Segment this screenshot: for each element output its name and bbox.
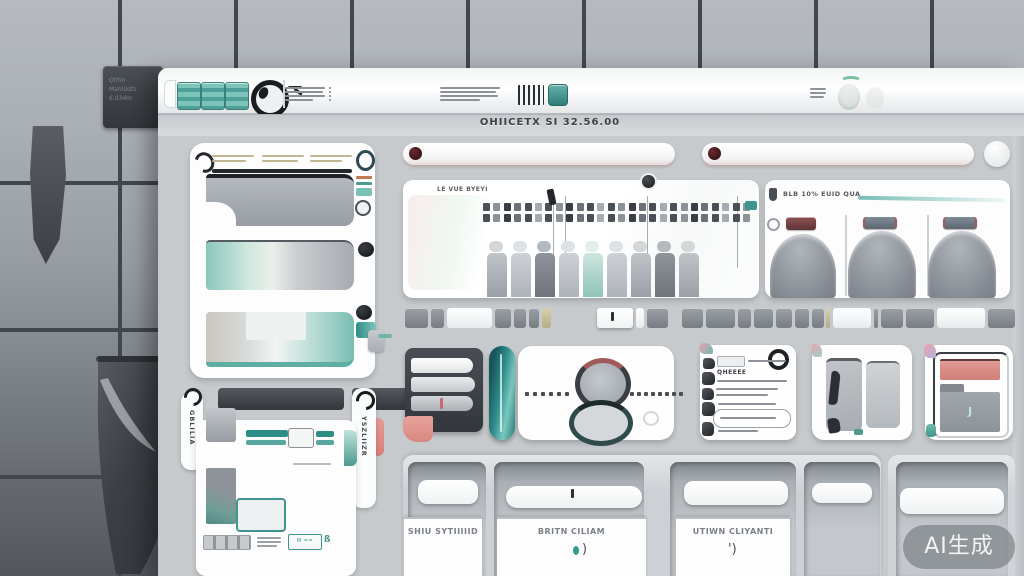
ruler-tick <box>722 214 729 222</box>
ruler-tick <box>629 214 636 222</box>
toolbar-divider <box>283 80 285 108</box>
layer-strip-3[interactable] <box>206 312 354 367</box>
ruler-tick <box>566 214 573 222</box>
scrubber-segment[interactable] <box>776 308 792 328</box>
list-heading: QHEEEE <box>717 369 747 376</box>
column-header-button-4[interactable] <box>812 483 872 503</box>
ruler-tick <box>577 214 584 222</box>
ruler-tick <box>545 214 552 222</box>
list-avatar <box>702 388 714 400</box>
status-egg-button-2[interactable] <box>866 87 884 109</box>
ruler-tick <box>629 203 636 211</box>
scrubber-segment[interactable] <box>988 308 1015 328</box>
teal-capsule-slider[interactable] <box>489 346 515 440</box>
column-bar <box>535 253 555 297</box>
column-cap <box>657 241 671 252</box>
scrubber-segment[interactable] <box>514 308 526 328</box>
ruler-tick <box>681 214 688 222</box>
teal-bar <box>246 440 286 445</box>
record-dot-icon <box>409 147 422 160</box>
segmented-control[interactable] <box>203 535 251 550</box>
scrubber-segment[interactable] <box>754 308 773 328</box>
ruler-tick <box>701 214 708 222</box>
ruler-tick <box>691 214 698 222</box>
selection-rect[interactable] <box>236 498 286 532</box>
ruler-tick <box>525 214 532 222</box>
column-bar <box>679 253 699 297</box>
column-cap <box>561 241 575 252</box>
ruler-tick <box>691 203 698 211</box>
column-bar <box>583 253 603 297</box>
column-cap <box>585 241 599 252</box>
screenshot-stage: Qthm Mahlddts 6.034m OHIICETX SI 32.56.0… <box>0 0 1024 576</box>
pink-corner-accent <box>403 416 433 442</box>
scrubber-segment[interactable] <box>826 308 830 328</box>
scrubber-segment[interactable] <box>636 308 644 328</box>
dash-dot <box>565 392 569 396</box>
strip-highlight <box>246 312 306 340</box>
gauge-pill-button-3[interactable] <box>943 217 977 229</box>
ruler-tick <box>597 203 604 211</box>
ruler-tick <box>514 214 521 222</box>
ruler-tick <box>712 203 719 211</box>
scrubber-segment[interactable] <box>431 308 444 328</box>
teal-glyph-icon: ß <box>324 535 332 547</box>
scrubber-tick <box>611 312 614 321</box>
swatch-tool-button-3[interactable] <box>225 82 249 110</box>
column-bar <box>607 253 627 297</box>
column-header-button-1[interactable] <box>418 480 478 504</box>
dark-slot-1 <box>218 388 344 410</box>
thumbnail-small[interactable] <box>206 408 236 442</box>
teal-tick <box>854 429 863 435</box>
teal-corner-accent <box>926 424 936 437</box>
dash-dot <box>549 392 553 396</box>
teal-swatch[interactable] <box>356 182 372 185</box>
bottom-card-mark: ') <box>728 542 737 557</box>
column-cap <box>489 241 503 252</box>
list-line <box>718 430 758 432</box>
globe-icon[interactable] <box>355 200 371 216</box>
swatch-tool-button-1[interactable] <box>177 82 201 110</box>
dash-dot <box>651 392 655 396</box>
ruler-tick <box>597 214 604 222</box>
ruler-tick <box>556 203 563 211</box>
ruler-tick <box>681 203 688 211</box>
scrubber-segment[interactable] <box>495 308 511 328</box>
ruler-tick <box>660 214 667 222</box>
dash-dot <box>665 392 669 396</box>
dash-dot <box>533 392 537 396</box>
dash-dot <box>557 392 561 396</box>
scrubber-segment[interactable] <box>682 308 703 328</box>
ruler-teal-cap <box>745 201 757 210</box>
dash-dot <box>658 392 662 396</box>
ruler-tick <box>722 203 729 211</box>
bottom-card-label: BRITN CILIAM <box>497 527 646 536</box>
divider <box>845 215 847 296</box>
scrubber-segment[interactable] <box>597 308 633 328</box>
list-line <box>748 360 786 362</box>
ruler-tick <box>493 214 500 222</box>
ruler-tick <box>535 214 542 222</box>
tab-underline <box>212 169 352 173</box>
swatch-tool-button-2[interactable] <box>201 82 225 110</box>
ruler-tick <box>712 214 719 222</box>
scrubber-segment[interactable] <box>405 308 428 328</box>
scrubber-segment[interactable] <box>542 308 551 328</box>
ruler-tick <box>649 203 656 211</box>
dash-dot <box>679 392 683 396</box>
dash-dot <box>630 392 634 396</box>
teal-tick <box>378 334 392 338</box>
ruler-tick <box>618 214 625 222</box>
label-line: 6.034m <box>109 94 159 103</box>
teal-corner-accent <box>344 430 357 466</box>
list-badge <box>717 356 745 367</box>
dock-tab-left-label: GBLILIA <box>188 410 196 445</box>
column-bar <box>655 253 675 297</box>
pink-corner-accent <box>699 343 713 354</box>
bookmark-icon <box>769 188 777 201</box>
timeline-label: LE VUE BYEYI <box>437 186 488 193</box>
progress-pill-right[interactable] <box>702 143 974 165</box>
column-cap <box>537 241 551 252</box>
dock-tab-right-label: YSZLIIZR <box>360 416 368 457</box>
ruler-tick <box>608 203 615 211</box>
ruler-tick <box>660 203 667 211</box>
dash-dot <box>672 392 676 396</box>
ghost-circle-icon <box>643 411 659 426</box>
label-line: Mahlddts <box>109 85 159 94</box>
column-cap <box>681 241 695 252</box>
handle-dot-icon[interactable] <box>356 305 372 320</box>
teal-bar <box>316 431 334 437</box>
ruler-tick <box>733 203 740 211</box>
bottom-card-label: SHIU SYTIIIIID <box>404 527 482 536</box>
column-bar <box>487 253 507 297</box>
teal-bar <box>246 430 288 437</box>
scrubber-segment[interactable] <box>881 308 903 328</box>
bottom-card-mark: ) <box>582 542 587 557</box>
column-header-button-5[interactable] <box>900 488 1004 514</box>
ruler-tick <box>556 214 563 222</box>
stack-item[interactable] <box>411 358 473 373</box>
divider <box>293 463 331 465</box>
knob-bottom[interactable] <box>569 400 633 446</box>
wall-label-plate: Qthm Mahlddts 6.034m <box>103 66 163 128</box>
pink-corner-accent <box>924 344 936 358</box>
scrubber-segment[interactable] <box>937 308 985 328</box>
bottom-card-1[interactable]: SHIU SYTIIIIID <box>404 517 482 576</box>
scrubber-segment[interactable] <box>833 308 871 328</box>
ruler-tick <box>577 203 584 211</box>
ink-mark <box>827 417 841 434</box>
list-line <box>718 403 776 405</box>
radio-icon[interactable] <box>767 218 780 231</box>
page-thumbnail-2[interactable] <box>866 361 900 428</box>
ruler-tick <box>483 214 490 222</box>
progress-pill-left[interactable] <box>403 143 675 165</box>
ai-watermark: AI生成 <box>903 525 1015 569</box>
ruler-tick <box>670 203 677 211</box>
layer-strip-2[interactable] <box>206 240 354 290</box>
ruler-tick <box>701 203 708 211</box>
toolbar-tab-notch <box>164 80 176 108</box>
gauges-label: BLB 10% EUID QUA <box>783 190 861 198</box>
scrubber-segment[interactable] <box>447 308 492 328</box>
round-button[interactable] <box>984 141 1010 167</box>
ruler-tick <box>525 203 532 211</box>
keyframe-dot-icon[interactable] <box>642 175 655 188</box>
column-bar <box>511 253 531 297</box>
ruler-tick <box>514 203 521 211</box>
list-line <box>716 388 778 390</box>
barcode-icon <box>518 85 544 105</box>
ruler-tick <box>743 214 750 222</box>
column-header-button-2[interactable] <box>506 486 642 508</box>
list-line <box>716 394 768 396</box>
list-line <box>717 380 787 382</box>
ruler-tick <box>504 214 511 222</box>
list-avatar <box>703 358 715 369</box>
status-egg-button-1[interactable] <box>838 84 860 110</box>
target-icon[interactable] <box>356 150 375 171</box>
salmon-header-bar <box>940 359 1000 380</box>
column-cap <box>633 241 647 252</box>
scrubber-segment[interactable] <box>906 308 934 328</box>
label-line: Qthm <box>109 76 159 85</box>
column-bar <box>559 253 579 297</box>
scrubber-segment[interactable] <box>647 308 668 328</box>
ruler-tick <box>639 203 646 211</box>
record-dot-icon <box>708 147 721 160</box>
header-tick <box>571 489 574 498</box>
handle-dot-icon[interactable] <box>358 242 374 257</box>
teal-block-swatch[interactable] <box>356 188 372 196</box>
teal-square-button[interactable] <box>548 84 568 106</box>
dash-dot <box>637 392 641 396</box>
gauge-pill-button-1[interactable] <box>786 217 816 230</box>
ruler-tick <box>587 214 594 222</box>
scrubber-segment[interactable] <box>795 308 809 328</box>
column-header-button-3[interactable] <box>684 481 788 505</box>
pink-tick <box>440 398 443 409</box>
scrubber-segment[interactable] <box>738 308 751 328</box>
ruler-tick <box>608 214 615 222</box>
column-well-4 <box>804 462 880 576</box>
column-bar <box>631 253 651 297</box>
dash-dot <box>541 392 545 396</box>
column-cap <box>513 241 527 252</box>
ruler-tick <box>733 214 740 222</box>
ruler-tick <box>566 203 573 211</box>
ruler-tick <box>535 203 542 211</box>
gauge-pill-button-2[interactable] <box>863 217 897 229</box>
window-title: OHIICETX SI 32.56.00 <box>300 117 800 128</box>
scrubber-segment[interactable] <box>812 308 824 328</box>
ruler-tick <box>587 203 594 211</box>
teal-bar <box>316 440 334 445</box>
ruler-tick <box>618 203 625 211</box>
ruler-tick <box>649 214 656 222</box>
scrubber-segment[interactable] <box>706 308 735 328</box>
teal-dot-icon <box>573 546 579 555</box>
mini-button-group[interactable] <box>288 428 314 448</box>
folder-icon[interactable]: J <box>940 392 1000 432</box>
list-avatar <box>702 422 714 436</box>
bottom-card-label: UTIWN CLIYANTI <box>676 527 790 536</box>
stack-item[interactable] <box>411 377 475 392</box>
column-cap <box>609 241 623 252</box>
list-avatar <box>702 372 715 385</box>
bottom-card-2[interactable]: BRITN CILIAM <box>497 517 646 576</box>
ruler-tick <box>504 203 511 211</box>
teal-outline-button[interactable]: M == <box>288 534 322 550</box>
pink-corner-accent <box>811 344 822 357</box>
scrubber-segment[interactable] <box>874 308 878 328</box>
ruler-tick <box>493 203 500 211</box>
ruler-tick <box>639 214 646 222</box>
list-line <box>720 417 776 419</box>
thumbnail-large[interactable] <box>206 468 236 524</box>
dash-dot <box>525 392 529 396</box>
ruler-tick <box>670 214 677 222</box>
scrubber-segment[interactable] <box>529 308 539 328</box>
layer-strip-1[interactable] <box>206 174 354 226</box>
ruler-tick <box>483 203 490 211</box>
orange-swatch[interactable] <box>356 176 372 179</box>
dash-dot <box>644 392 648 396</box>
